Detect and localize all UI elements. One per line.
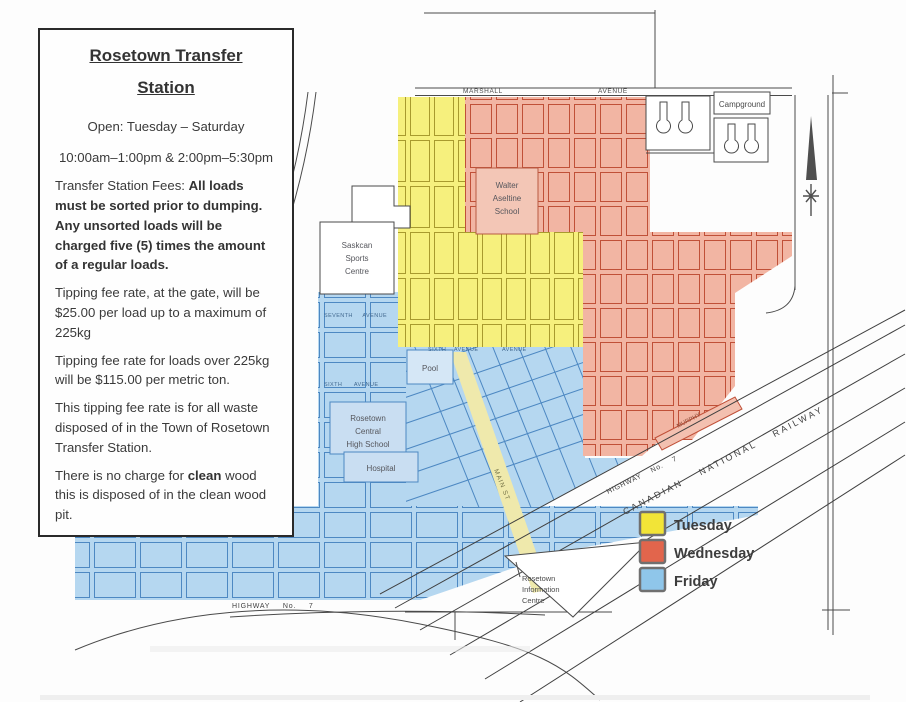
legend-label-wednesday: Wednesday	[674, 546, 754, 562]
sixth-avenue-label-2: SIXTH AVENUE	[428, 347, 478, 353]
title-line1: Rosetown Transfer	[55, 40, 277, 72]
south-curved-road	[75, 610, 600, 700]
tipping-rate-1-paragraph: Tipping fee rate, at the gate, will be $…	[55, 283, 277, 342]
info-centre-line3: Centre	[522, 596, 545, 605]
north-arrow-icon	[803, 116, 819, 216]
open-hours-text: 10:00am–1:00pm & 2:00pm–5:30pm	[55, 148, 277, 168]
hospital-label: Hospital	[367, 464, 396, 473]
clean-wood-bold: clean	[188, 468, 222, 483]
marshall-label: MARSHALL	[463, 88, 503, 95]
campground-label: Campground	[719, 100, 765, 109]
fees-prefix: Transfer Station Fees:	[55, 178, 189, 193]
tipping-scope-text: This tipping fee rate is for all waste d…	[55, 400, 270, 455]
sports-centre-label: Saskcan Sports Centre	[342, 241, 373, 276]
tipping-rate-2-text: Tipping fee rate for loads over 225kg wi…	[55, 353, 269, 388]
transfer-station-info-box: Rosetown Transfer Station Open: Tuesday …	[38, 28, 294, 537]
tipping-rate-2-paragraph: Tipping fee rate for loads over 225kg wi…	[55, 351, 277, 391]
school-line2: Aseltine	[493, 194, 522, 203]
open-hours-value: 10:00am–1:00pm & 2:00pm–5:30pm	[59, 150, 273, 165]
scan-smudge-bottom	[40, 695, 870, 700]
legend-label-tuesday: Tuesday	[674, 518, 732, 534]
open-days-value: Open: Tuesday – Saturday	[88, 119, 245, 134]
campground-loop-area-west	[646, 96, 710, 150]
sixth-avenue-label: SIXTH AVENUE	[324, 382, 378, 388]
legend-swatch-tuesday	[640, 512, 665, 535]
sports-centre-line1: Saskcan	[342, 241, 373, 250]
highway-bottom-label: HIGHWAY No. 7	[232, 603, 314, 610]
avenue-label-2: AVENUE	[502, 347, 527, 353]
fees-paragraph: Transfer Station Fees: All loads must be…	[55, 176, 277, 275]
school-line3: School	[495, 207, 520, 216]
title-line2: Station	[55, 72, 277, 104]
clean-wood-paragraph: There is no charge for clean wood this i…	[55, 466, 277, 525]
pool-label: Pool	[422, 364, 438, 373]
east-curve-road	[766, 286, 795, 313]
info-box-title: Rosetown Transfer Station	[55, 40, 277, 105]
high-school-line2: Central	[355, 427, 381, 436]
legend-label-friday: Friday	[674, 574, 718, 590]
scan-smudge	[150, 646, 530, 652]
high-school-line1: Rosetown	[350, 414, 386, 423]
seventh-avenue-label: SEVENTH AVENUE	[324, 313, 387, 319]
sports-centre-line2: Sports	[345, 254, 368, 263]
map-legend: Tuesday Wednesday Friday	[640, 512, 754, 591]
clean-wood-prefix: There is no charge for	[55, 468, 188, 483]
open-days-text: Open: Tuesday – Saturday	[55, 117, 277, 137]
info-centre-line2: Information	[522, 585, 560, 594]
legend-item-friday: Friday	[640, 568, 718, 591]
tipping-rate-1-text: Tipping fee rate, at the gate, will be $…	[55, 285, 266, 340]
info-centre-line1: Rosetown	[522, 574, 555, 583]
sports-centre-line3: Centre	[345, 267, 370, 276]
legend-swatch-wednesday	[640, 540, 665, 563]
marshall-avenue-label: AVENUE	[598, 88, 628, 95]
tipping-scope-paragraph: This tipping fee rate is for all waste d…	[55, 398, 277, 457]
school-label: Walter Aseltine School	[493, 181, 522, 216]
legend-swatch-friday	[640, 568, 665, 591]
high-school-line3: High School	[346, 440, 389, 449]
campground-loop-area-east	[714, 118, 768, 162]
campground-area: Campground	[646, 92, 770, 162]
school-line1: Walter	[496, 181, 519, 190]
scanned-flyer-page: Rosetown Information Centre Saskcan Spor…	[0, 0, 906, 702]
legend-item-wednesday: Wednesday	[640, 540, 754, 563]
